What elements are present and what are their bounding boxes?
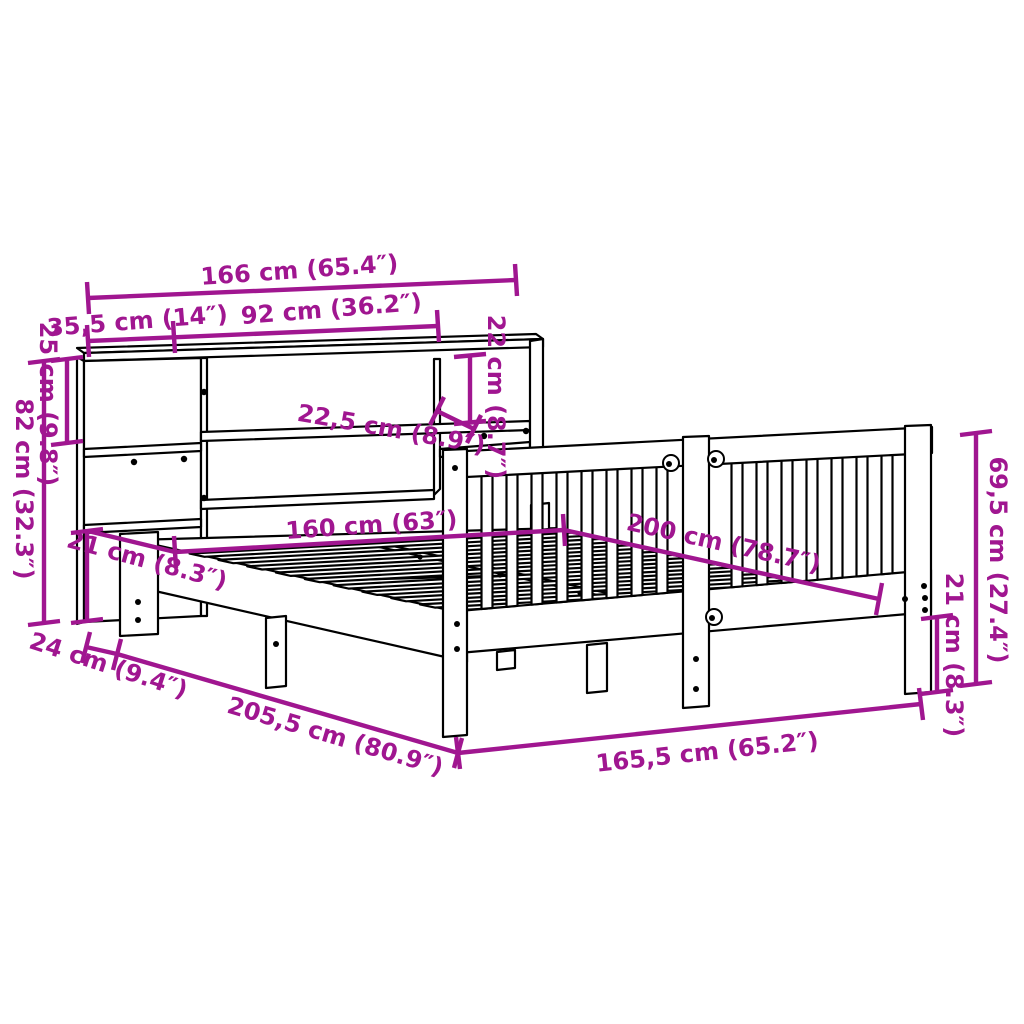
panel-left-post (443, 449, 467, 737)
dimension-shelf-depth: 22,5 cm (8.9″) (295, 397, 487, 459)
shelf-opening-width-label: 92 cm (36.2″) (240, 288, 423, 330)
panel-right-post (905, 425, 931, 694)
dimension-diagram: 166 cm (65.4″) 35,5 cm (14″) 92 cm (36.2… (0, 0, 1024, 1024)
dimension-top-section-height: 25 cm (9.8″) (34, 322, 83, 487)
mid-left-leg (266, 616, 286, 688)
bed-diagram-svg: 166 cm (65.4″) 35,5 cm (14″) 92 cm (36.2… (0, 0, 1024, 1024)
frame-height-label: 21 cm (8.3″) (940, 573, 968, 738)
headboard-panel (443, 425, 932, 737)
dimension-bookcase-depth: 24 cm (9.4″) (26, 627, 191, 704)
center-rail-foot (497, 650, 515, 670)
center-support-leg (587, 643, 607, 693)
bookcase-right-end (530, 339, 543, 456)
total-length-label: 205,5 cm (80.9″) (224, 691, 446, 781)
panel-middle-post (683, 436, 709, 708)
bookcase-height-label: 82 cm (32.3″) (10, 398, 38, 579)
top-shelf-height-label: 22 cm (8.7″) (482, 315, 510, 480)
bookcase-depth-label: 24 cm (9.4″) (26, 627, 191, 704)
headboard-height-label: 69,5 cm (27.4″) (984, 456, 1012, 663)
shelf-depth-label: 22,5 cm (8.9″) (295, 399, 487, 460)
headboard-back-panel-bottom (201, 490, 434, 509)
